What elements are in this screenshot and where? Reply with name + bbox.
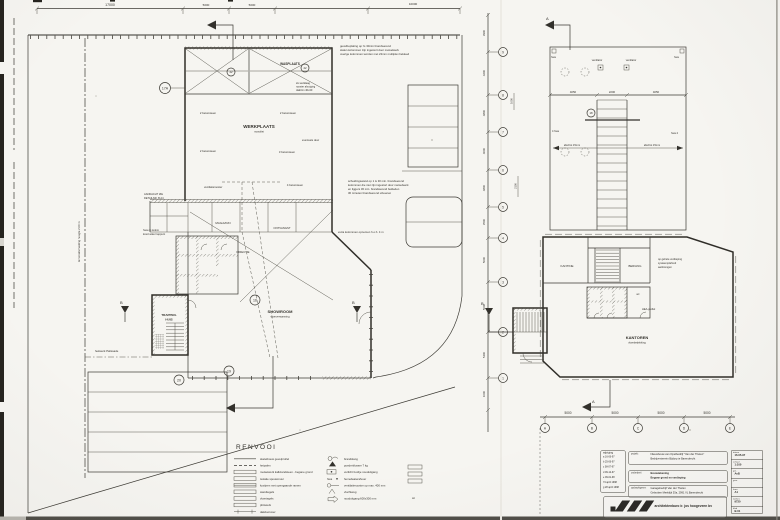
werkplaats-sub: monoliet bbox=[254, 130, 264, 134]
field-value: A1 bbox=[735, 491, 738, 494]
note-hwa-1: hwa op kolom bbox=[143, 228, 159, 232]
gb-C: C bbox=[637, 426, 640, 430]
roof-dim-3: 4050 bbox=[653, 90, 660, 94]
bubble-22a: 22 bbox=[229, 70, 233, 74]
architect-firm-name: architektenburo ir. jos hoogeveen bv bbox=[655, 505, 713, 509]
extra-dim-2100: 2100 bbox=[514, 183, 518, 189]
legend-l7: vloertegels bbox=[260, 497, 274, 501]
grid-bubble-8: 8 bbox=[502, 93, 504, 97]
bubble-19: 19 bbox=[227, 370, 231, 374]
room-label-showroom: SHOWROOM bbox=[268, 309, 294, 314]
dim-10000: 10000 bbox=[409, 2, 418, 6]
vdim-3: 4800 bbox=[482, 109, 486, 116]
plan-drawing: 17000 5000 5000 10000 terreinafscheiding… bbox=[0, 0, 780, 520]
hea-note: HEA-profiel bbox=[642, 307, 656, 311]
wall-label-3: 2 betonsteen bbox=[280, 111, 297, 115]
room-label-directie: DIRECTIE bbox=[236, 250, 249, 254]
section-arrows-left-plan: B B bbox=[120, 21, 361, 413]
client-label: opdrachtgever: bbox=[631, 487, 646, 490]
legend-l2: heipalen bbox=[260, 464, 271, 468]
label-eventuele-deur: eventuele deur bbox=[302, 138, 319, 142]
room-label-trappenhuis-2: HUIS bbox=[165, 318, 172, 322]
grid-bubble-2: 2 bbox=[502, 330, 504, 334]
legend-left-symbols bbox=[234, 459, 256, 514]
legend: RENVOOI skeletbouw gevelprofiel heipalen… bbox=[234, 444, 422, 514]
project-line2: Bedrijventerrein Bijdorp te Barendrecht bbox=[651, 458, 696, 461]
project-line1: Nieuwbouw van Opelbedrijf "Van der Thele… bbox=[651, 453, 705, 456]
room-label-magazijn: MAGAZIJN bbox=[215, 221, 230, 225]
grid-dimension-chain: 3900 4200 4800 4000 4800 3500 5000 5000 … bbox=[481, 13, 518, 432]
drawing-sheet: 17000 5000 5000 10000 terreinafscheiding… bbox=[0, 0, 780, 520]
title-block: wijziging a 16-06-97 b 25-06-97 c 08-07-… bbox=[598, 446, 780, 518]
wall-label-5: 4 betonsteen bbox=[287, 183, 304, 187]
vdim-9: 5400 bbox=[482, 351, 486, 358]
legend-l8: plintwerk bbox=[260, 503, 272, 507]
office-note-1: op gehele verdieping bbox=[658, 257, 683, 261]
grid-bubble-9: 9 bbox=[502, 50, 504, 54]
room-label-ontvangst: ONTVANGST bbox=[273, 226, 290, 230]
fence-note: hekwerk Palissade bbox=[95, 349, 119, 353]
dim-5000-a: 5000 bbox=[203, 3, 210, 7]
onderdeel-line1: Bouwtekening bbox=[651, 472, 669, 475]
note-wasplaats-2: rooster afzuiging bbox=[296, 85, 316, 89]
bubble-17A: 17A bbox=[162, 87, 169, 91]
office-note-3: aanbrengen bbox=[658, 265, 672, 269]
note-gevel-3: overige kolommen worden met 22mm multipl… bbox=[340, 52, 410, 56]
grid-bubble-6: 6 bbox=[502, 168, 504, 172]
hwa-right: hwa 4 bbox=[671, 131, 678, 135]
left-plan-ground-floor: 17000 5000 5000 10000 terreinafscheiding… bbox=[14, 2, 462, 513]
revision-row: g 28 april 1998 bbox=[603, 486, 626, 491]
legend-l3: metselwerk kalkzandsteen - begane grond bbox=[260, 470, 313, 474]
legend-r7: nooduitgang 600x300 mm bbox=[344, 497, 377, 501]
grid-bubble-1: 1 bbox=[502, 376, 504, 380]
room-label-kantine: KANTINE bbox=[560, 264, 573, 268]
afschot-right: afschot 15mm bbox=[644, 143, 660, 147]
vdim-6: 3500 bbox=[482, 218, 486, 225]
bubble-20: 20 bbox=[177, 379, 181, 383]
roof-dim-2: 2200 bbox=[609, 90, 616, 94]
note-wasplaats-1: 2e werklaag bbox=[296, 81, 311, 85]
legend-r5: ventilatierooster op max. 400 mm bbox=[344, 483, 386, 487]
room-label-trappenhuis-1: TRAPPEN- bbox=[161, 313, 176, 317]
note-aandacht-2: DETAILNR. B A4 bbox=[144, 196, 164, 200]
room-label-kantoren: KANTOREN bbox=[626, 335, 649, 340]
fields-box: datum16-05-97 schaal1:100 get.AvB gew. f… bbox=[731, 450, 763, 514]
right-plan-first-floor: A hwa hwa ventilator ventilator 4050 220… bbox=[513, 16, 736, 433]
grid-bubble-4: 4 bbox=[502, 236, 504, 240]
boundary-note: terreinafscheiding hoogte 2.00 m bbox=[77, 221, 81, 262]
office-note-2: systeemplafond bbox=[658, 261, 677, 265]
trappenhuis: TRAPPEN- HUIS bbox=[152, 295, 196, 355]
onderdeel-label: onderdeel: bbox=[631, 472, 642, 475]
legend-wt: wt bbox=[412, 496, 415, 500]
legend-r3: verlicht bordje nooduitgang bbox=[344, 470, 378, 474]
project-label: projekt: bbox=[631, 453, 639, 456]
bdim-2: 5000 bbox=[611, 411, 618, 415]
gb-D: D bbox=[683, 426, 686, 430]
onderdeel-box: onderdeel: Bouwtekening Begane grond en … bbox=[628, 470, 728, 483]
section-arrow-bottom: A bbox=[582, 380, 610, 412]
logo-box: architektenburo ir. jos hoogeveen bv bbox=[603, 496, 727, 518]
section-b-left: B bbox=[120, 300, 123, 305]
bubble-18: 18 bbox=[589, 111, 593, 115]
gb-A: A bbox=[544, 426, 547, 430]
bubble-22b: 22 bbox=[303, 66, 307, 70]
legend-r4: hemelwaterafvoer bbox=[344, 477, 366, 481]
section-arrow-top: A bbox=[545, 16, 570, 50]
top-dimension-line: 17000 5000 5000 10000 bbox=[35, 2, 462, 14]
label-ventilatierooster: ventilatierooster bbox=[204, 185, 222, 189]
office-floor-plan: KANTINE BERGING wc KANTOREN vloerbedekki… bbox=[513, 234, 736, 380]
vdim-4: 4000 bbox=[482, 147, 486, 154]
vdim-7: 5000 bbox=[482, 256, 486, 263]
vdim-5: 4800 bbox=[482, 184, 486, 191]
note-extra: extra kolommen opnemen h.o.h. 4 m bbox=[338, 230, 384, 234]
section-a-top-label: A bbox=[546, 16, 549, 21]
room-label-werkplaats: WERKPLAATS bbox=[243, 124, 274, 129]
project-box: projekt: Nieuwbouw van Opelbedrijf "Van … bbox=[628, 451, 728, 465]
wall-label-4: 3 betonsteen bbox=[279, 150, 296, 154]
gb-E: E bbox=[729, 426, 731, 430]
section-a-bottom-label: A bbox=[592, 399, 595, 404]
client-line1: Garagebedrijf Van der Thelen bbox=[651, 487, 686, 490]
roof-dim-1: 4050 bbox=[570, 90, 577, 94]
room-label-wc: wc bbox=[636, 293, 640, 296]
field-value: AvB bbox=[735, 473, 740, 476]
vdim-2: 4200 bbox=[482, 69, 486, 76]
middle-block: MAGAZIJN ONTVANGST DIRECTIE bbox=[150, 201, 333, 302]
hwa-left: 4 hwa bbox=[552, 129, 559, 133]
gb-B: B bbox=[591, 426, 593, 430]
legend-l6: wandtegels bbox=[260, 490, 275, 494]
extra-dim-1000: 1000 bbox=[510, 98, 514, 104]
ventilator-label-1: ventilator bbox=[592, 58, 603, 62]
legend-l9: dakdoorvoer bbox=[260, 510, 276, 514]
field-value: 1:100 bbox=[735, 463, 742, 466]
legend-r2: poederblusser 7 kg bbox=[344, 464, 368, 468]
note-scheiding-4: 30 minuten brandwerend uitvoeren bbox=[348, 191, 392, 195]
roof-plan: hwa hwa ventilator ventilator 4050 2200 … bbox=[548, 47, 688, 230]
legend-r6: vluchtweg bbox=[344, 490, 357, 494]
hwa-top-left: hwa bbox=[551, 55, 556, 59]
legend-right-symbols: hwa bbox=[327, 457, 339, 503]
revision-box: wijziging a 16-06-97 b 25-06-97 c 08-07-… bbox=[600, 450, 626, 493]
legend-l4: isolatie spouwmuur bbox=[260, 477, 284, 481]
dim-17000: 17000 bbox=[105, 3, 115, 7]
grid-bubble-5: 5 bbox=[502, 205, 504, 209]
legend-sym-hwa: hwa bbox=[327, 477, 333, 481]
legend-title: RENVOOI bbox=[236, 444, 276, 451]
kantoren-sub: vloerbedekking bbox=[628, 341, 646, 345]
note-hwa-2: koud water tappunt bbox=[143, 232, 165, 236]
plan-notes: gevelbeplating op t's 30min brandwerend … bbox=[143, 44, 410, 236]
bubble-16: 16 bbox=[253, 299, 257, 303]
afschot-left: afschot 15mm bbox=[564, 143, 580, 147]
hwa-top-right: hwa bbox=[674, 55, 679, 59]
note-aandacht-1: AANDACHT ZIE bbox=[144, 192, 163, 196]
client-line2: Gebroken Meeldijk 53a, 2991 VL Barendrec… bbox=[651, 492, 704, 495]
showroom-sub: vloerverwarming bbox=[270, 315, 290, 319]
vdim-10: 1000 bbox=[482, 390, 486, 397]
bottom-grid-line: 5000 5000 5000 5000 A B C D E bbox=[540, 411, 735, 433]
note-wasplaats-3: daktrim 40x40 bbox=[296, 88, 313, 92]
dim-5000-b: 5000 bbox=[249, 3, 256, 7]
bdim-4: 5000 bbox=[703, 411, 710, 415]
section-b-right: B bbox=[352, 300, 355, 305]
wall-label-1: 2 betonsteen bbox=[200, 111, 217, 115]
legend-l1: skeletbouw gevelprofiel bbox=[260, 457, 289, 461]
parking-areas bbox=[88, 85, 462, 472]
room-label-wasplaats: WASPLAATS bbox=[280, 62, 300, 66]
vdim-1: 3900 bbox=[482, 29, 486, 36]
field-value: 16-05-97 bbox=[735, 454, 746, 457]
field-value: 9720 bbox=[735, 500, 741, 503]
field-value: B.01 bbox=[735, 510, 741, 513]
field-label: gew. bbox=[733, 479, 738, 482]
room-label-berging: BERGING bbox=[629, 264, 642, 268]
grid-bubble-7: 7 bbox=[502, 130, 504, 134]
section-b-chain: B bbox=[481, 301, 484, 306]
legend-r1: brandslang bbox=[344, 457, 358, 461]
werkplaats-block: WASPLAATS WERKPLAATS monoliet 2 betonste… bbox=[150, 46, 333, 358]
ventilator-label-2: ventilator bbox=[626, 58, 637, 62]
legend-l5: kozijnen met opengaande ramen bbox=[260, 483, 301, 487]
bdim-3: 5000 bbox=[657, 411, 664, 415]
bdim-1: 5000 bbox=[564, 411, 571, 415]
grid-bubble-3: 3 bbox=[502, 280, 504, 284]
onderdeel-line2: Begane grond en verdieping bbox=[651, 477, 686, 480]
wall-label-2: 2 betonsteen bbox=[200, 149, 217, 153]
